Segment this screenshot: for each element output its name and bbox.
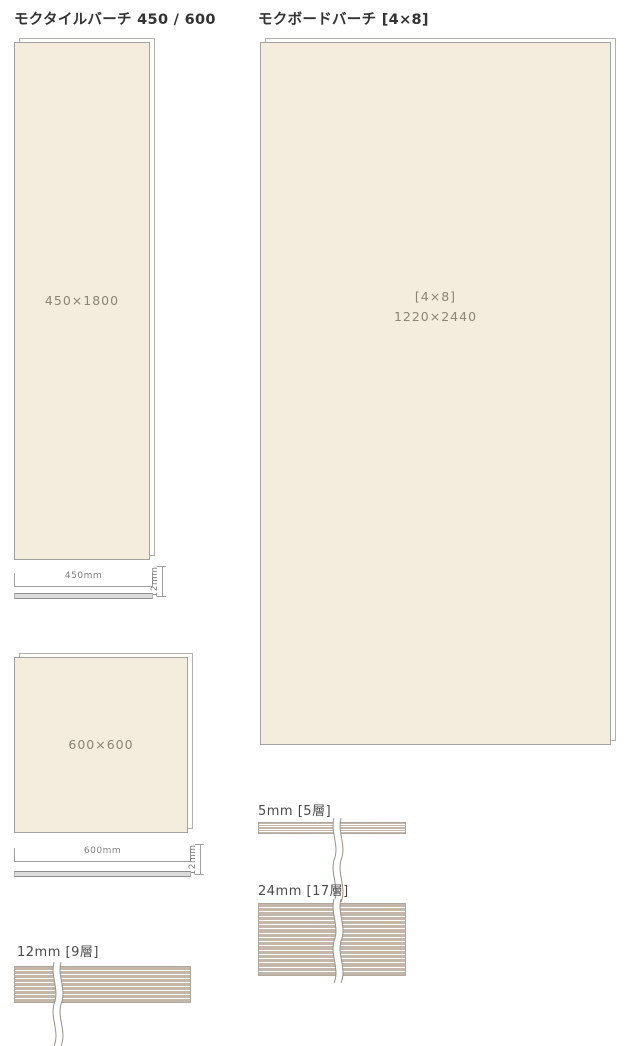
tile-450x1800-panel: 450×1800: [14, 42, 150, 560]
cross-section-12mm-label: 12mm [9層]: [17, 941, 99, 960]
dim-tick: [14, 573, 15, 587]
dim-line: [162, 566, 163, 597]
width-dimension-600: 600mm: [14, 843, 191, 863]
dim-label-600mm: 600mm: [14, 846, 191, 856]
break-symbol-icon: [329, 899, 345, 983]
dim-tick: [14, 848, 15, 862]
tile-450x1800-size-label: 450×1800: [45, 291, 119, 311]
cross-section-24mm-label: 24mm [17層]: [258, 880, 349, 899]
dim-label-450mm: 450mm: [14, 571, 153, 581]
veneer-layer: [15, 979, 190, 982]
veneer-layer: [15, 971, 190, 974]
tile-600-edge-profile: [14, 871, 191, 877]
panel-face: 450×1800: [14, 42, 150, 560]
veneer-layer: [15, 999, 190, 1002]
tile-450-edge-profile: [14, 593, 153, 599]
veneer-layer: [15, 987, 190, 990]
dim-tick: [195, 844, 204, 845]
dim-tick: [157, 596, 166, 597]
width-dimension-450: 450mm: [14, 568, 153, 588]
left-section-heading: モクタイルバーチ 450 / 600: [14, 8, 216, 29]
tile-600x600-size-label: 600×600: [68, 735, 133, 755]
board-4x8-panel: [4×8] 1220×2440: [260, 42, 611, 745]
cross-section-5mm-label: 5mm [5層]: [258, 800, 331, 819]
cross-section-24mm-bar: [258, 903, 406, 976]
veneer-layer: [15, 995, 190, 998]
right-section-heading: モクボードバーチ [4×8]: [258, 8, 429, 29]
board-4x8-size-line2: 1220×2440: [261, 307, 610, 327]
product-spec-diagram: モクタイルバーチ 450 / 600 モクボードバーチ [4×8] 450×18…: [0, 0, 633, 1024]
veneer-layer: [15, 975, 190, 978]
dim-tick: [157, 566, 166, 567]
dim-line: [14, 586, 153, 587]
dim-line: [14, 861, 191, 862]
cross-section-12mm-bar: [14, 966, 191, 1003]
panel-face: [4×8] 1220×2440: [260, 42, 611, 745]
tile-600x600-panel: 600×600: [14, 657, 188, 833]
dim-tick: [195, 874, 204, 875]
break-symbol-icon: [49, 962, 65, 1046]
board-4x8-size-label: [4×8] 1220×2440: [261, 287, 610, 327]
veneer-layer: [15, 967, 190, 970]
cross-section-5mm-bar: [258, 822, 406, 834]
panel-face: 600×600: [14, 657, 188, 833]
veneer-layer: [15, 991, 190, 994]
board-4x8-size-line1: [4×8]: [261, 287, 610, 307]
veneer-layer: [15, 983, 190, 986]
dim-line: [200, 844, 201, 875]
